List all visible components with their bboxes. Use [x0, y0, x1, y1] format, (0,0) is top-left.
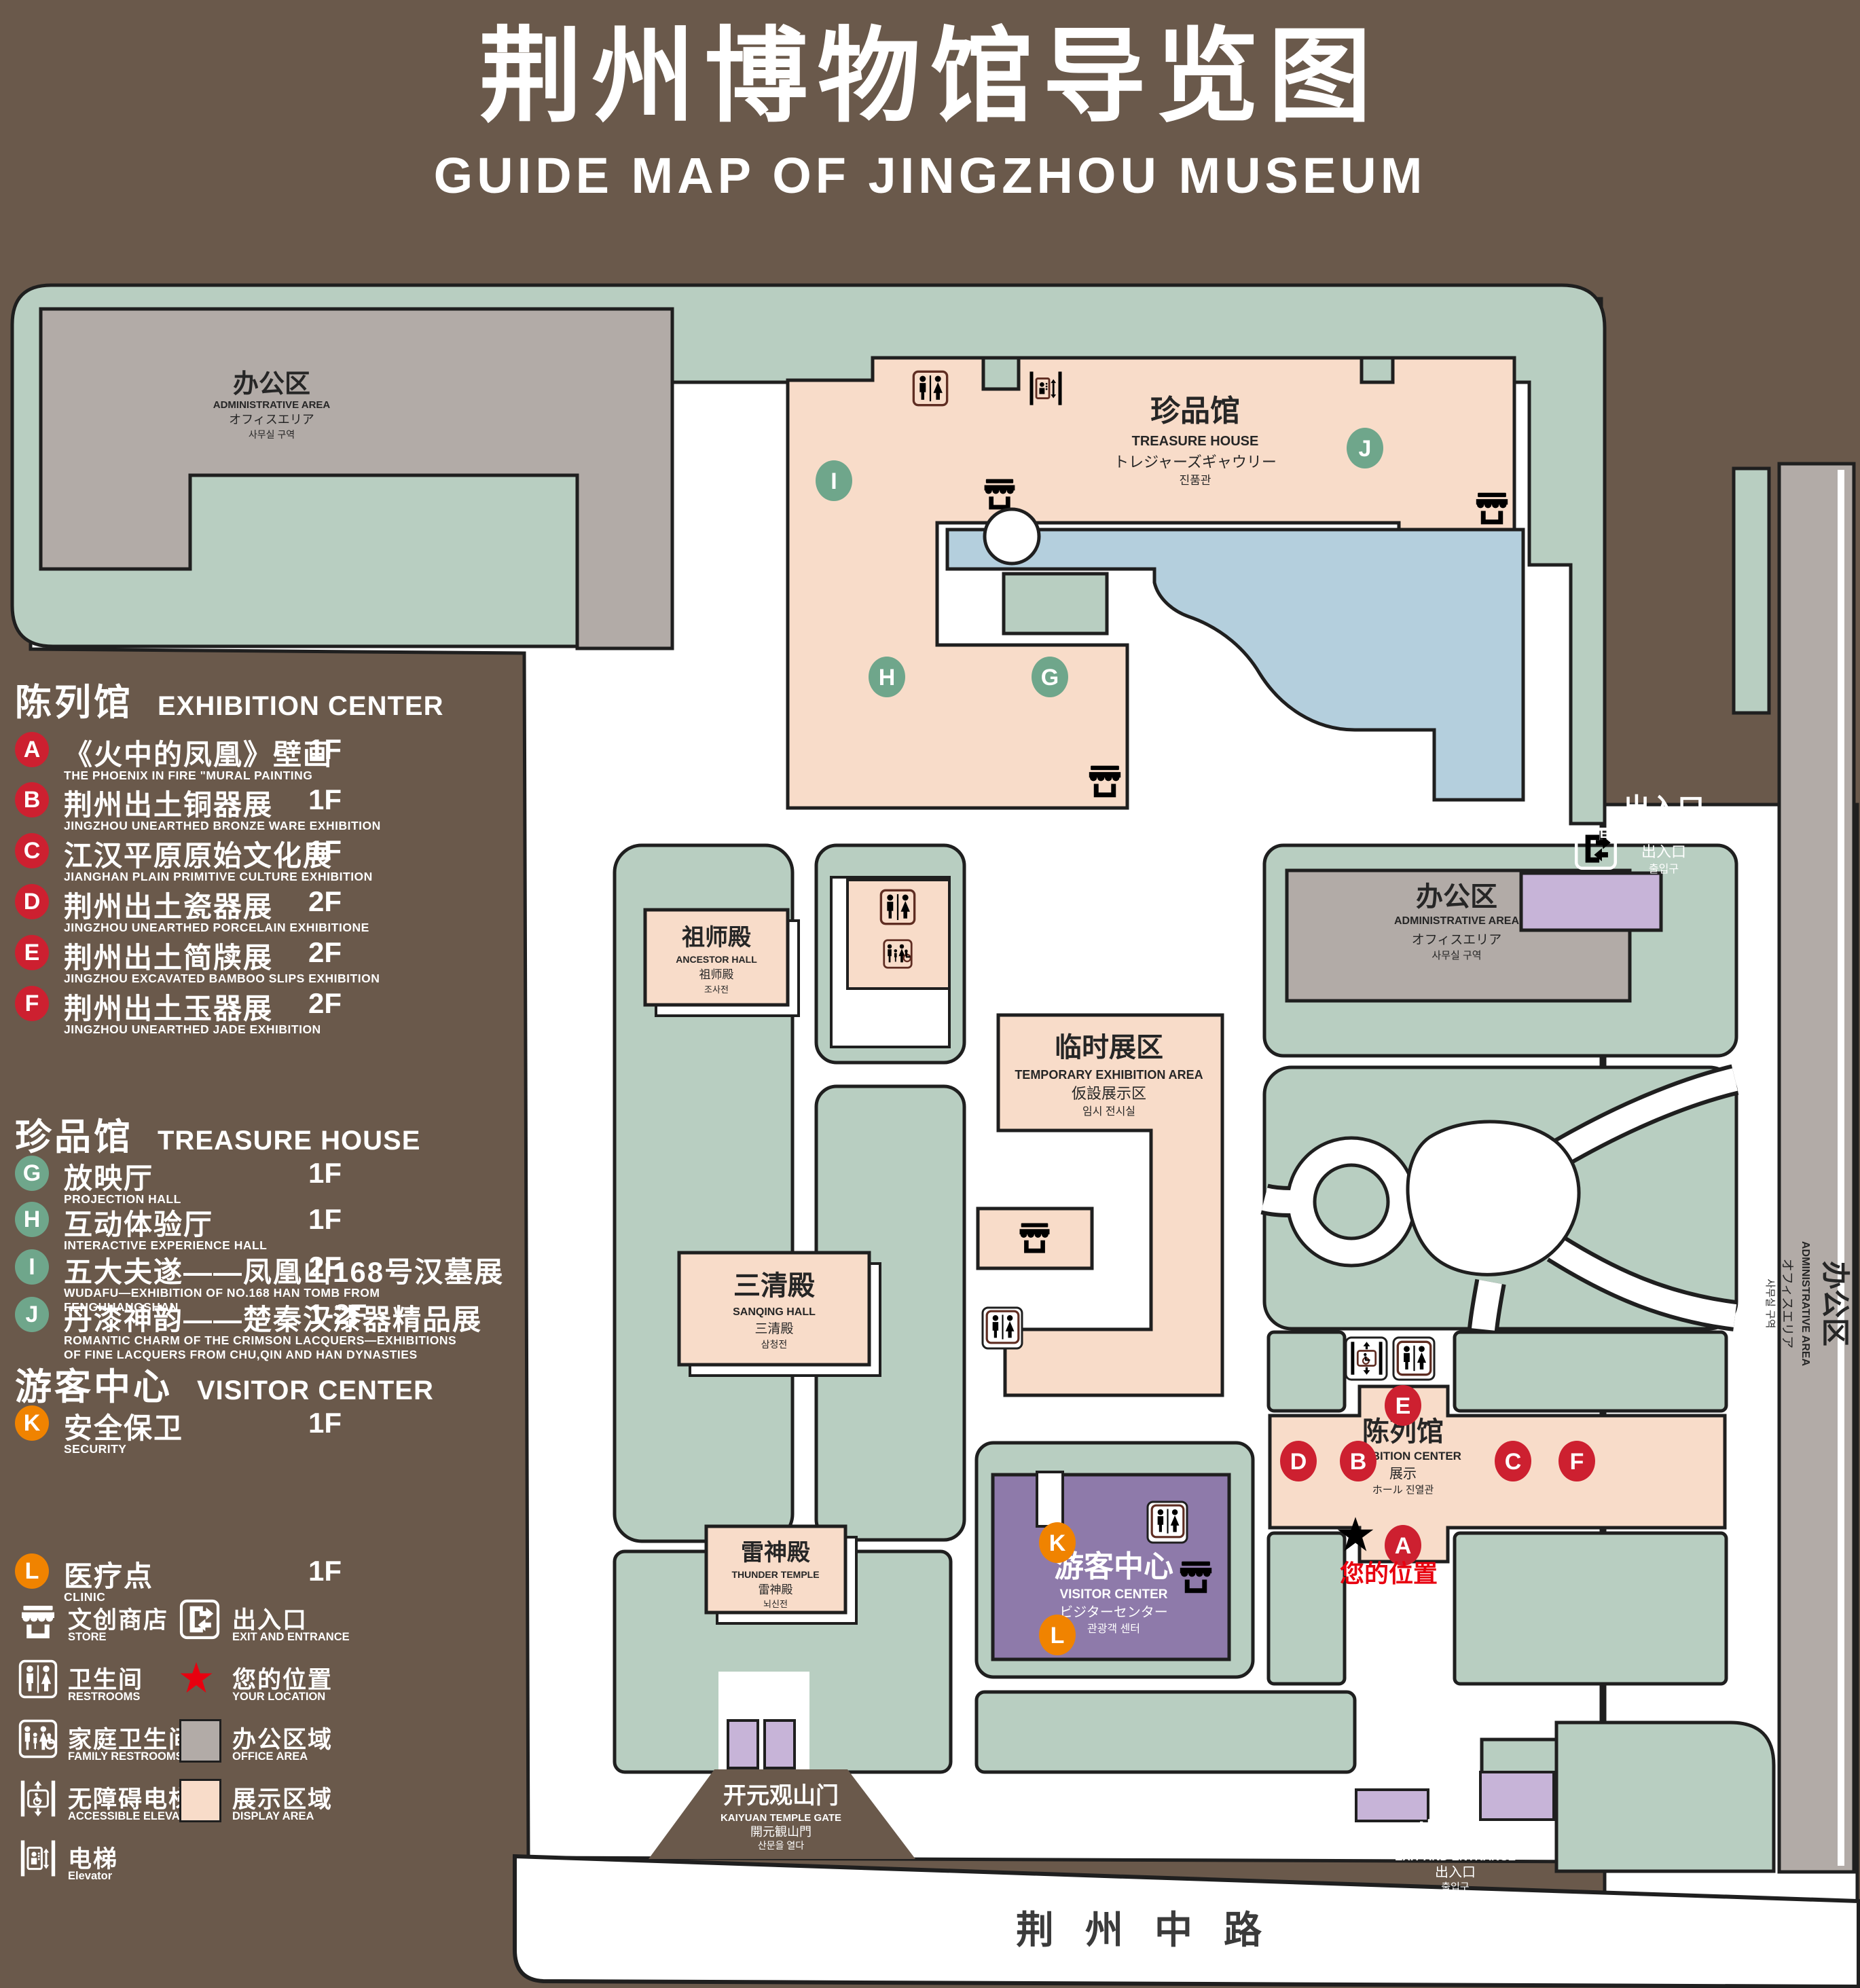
road-name: 荆州中路 [1016, 1909, 1293, 1951]
marker-F: F [1558, 1441, 1595, 1481]
marker-K: K [1039, 1522, 1076, 1563]
green-south-right [1556, 1723, 1774, 1871]
admin-fr-label-ja: オフィスエリア [1780, 1259, 1794, 1349]
exit-right-zh: 出入口 [1623, 794, 1704, 824]
green-exh-bottom-right [1455, 1533, 1726, 1684]
green-step-exit [1482, 1739, 1556, 1773]
green-strip-right-top [1734, 468, 1769, 713]
sanqing-label-ko: 삼청전 [761, 1339, 788, 1350]
visitor-label-ja: ビジターセンター [1059, 1604, 1168, 1620]
admin-tl-label-ko: 사무실 구역 [249, 429, 295, 440]
badge-C: C [15, 833, 49, 868]
building-admin-far-right: 办公区 ADMINISTRATIVE AREA オフィスエリア 사무실 구역 [1764, 464, 1854, 1872]
svg-text:K: K [1049, 1530, 1066, 1556]
marker-I: I [816, 460, 852, 501]
marker-J: J [1347, 428, 1383, 468]
exhibition-label-ko: ホール 진열관 [1372, 1484, 1434, 1496]
lavender-block-exit-right [1521, 873, 1661, 930]
exit-right-ko: 출입구 [1649, 863, 1679, 875]
sanqing-label-ja: 三清殿 [754, 1321, 793, 1336]
ancestor-label-ko: 조사전 [704, 984, 729, 995]
svg-text:E: E [1396, 1393, 1411, 1419]
badge-G: G [15, 1156, 49, 1191]
gate-pillar [765, 1720, 795, 1768]
sanqing-label-zh: 三清殿 [733, 1271, 815, 1301]
svg-text:I: I [831, 468, 837, 494]
exit-right-ja: 出入口 [1641, 843, 1686, 860]
thunder-label-ko: 뇌신전 [763, 1599, 788, 1609]
svg-text:C: C [1505, 1449, 1522, 1475]
svg-text:J: J [1359, 436, 1372, 462]
thunder-label-en: THUNDER TEMPLE [731, 1569, 819, 1580]
thunder-label-ja: 雷神殿 [759, 1583, 793, 1596]
hall-ancestor: 祖师殿 ANCESTOR HALL 祖师殿 조사전 [645, 910, 799, 1016]
pond-green-island [1004, 574, 1107, 633]
gate-label-ja: 開元観山門 [750, 1825, 812, 1839]
location-star-icon [179, 1661, 213, 1695]
thunder-label-zh: 雷神殿 [741, 1540, 810, 1566]
legend-panel: 陈列馆 EXHIBITION CENTER A 《火中的凤凰》壁画 THE PH… [8, 672, 531, 1983]
exhibition-label-ja: 展示 [1389, 1467, 1417, 1481]
section-title-en: TREASURE HOUSE [158, 1126, 420, 1156]
admin-fr-label-en: ADMINISTRATIVE AREA [1800, 1241, 1811, 1366]
temp-label-en: TEMPORARY EXHIBITION AREA [1015, 1068, 1203, 1082]
sanqing-label-en: SANQING HALL [733, 1306, 816, 1318]
admin-fr-label-zh: 办公区 [1819, 1261, 1851, 1346]
marker-C: C [1495, 1441, 1531, 1481]
badge-E: E [15, 935, 49, 970]
badge-A: A [15, 732, 49, 767]
legend-section-treasure: 珍品馆 TREASURE HOUSE [15, 1107, 420, 1160]
section-title-zh: 珍品馆 [15, 1107, 133, 1160]
temp-store-block [978, 1209, 1092, 1268]
admin-r-label-zh: 办公区 [1416, 882, 1497, 912]
admin-r-label-ko: 사무실 구역 [1432, 950, 1481, 961]
visitor-corridor-notch [1037, 1472, 1063, 1526]
your-location-label: 您的位置 [1340, 1560, 1438, 1587]
temp-label-ja: 仮設展示区 [1072, 1085, 1146, 1102]
svg-text:H: H [879, 665, 896, 691]
badge-K: K [15, 1405, 49, 1441]
gate-label-zh: 开元观山门 [723, 1783, 839, 1809]
admin-r-label-en: ADMINISTRATIVE AREA [1394, 915, 1519, 927]
admin-tl-label-zh: 办公区 [233, 370, 310, 399]
gate-post [1480, 1772, 1554, 1820]
ancestor-label-en: ANCESTOR HALL [676, 954, 757, 965]
store-icon [18, 1601, 58, 1643]
restroom-icon [18, 1658, 58, 1700]
courtyard-restroom-block [831, 877, 949, 1047]
admin-fr-label-ko: 사무실 구역 [1764, 1278, 1776, 1328]
marker-H: H [869, 657, 905, 697]
svg-text:A: A [1395, 1533, 1412, 1559]
exit-bottom-ko: 출입구 [1441, 1881, 1469, 1893]
treasure-label-ko: 진품관 [1180, 474, 1211, 487]
visitor-label-en: VISITOR CENTER [1059, 1587, 1167, 1602]
admin-r-label-ja: オフィスエリア [1412, 933, 1502, 947]
badge-H: H [15, 1202, 49, 1237]
exit-bottom-ja: 出入口 [1435, 1864, 1476, 1880]
treasure-label-ja: トレジャーズギャウリー [1114, 454, 1277, 471]
section-title-en: VISITOR CENTER [197, 1376, 434, 1406]
section-title-zh: 陈列馆 [15, 672, 133, 726]
marker-B: B [1340, 1441, 1376, 1481]
exit-bottom-en: EXIT AND ENTRANCE [1395, 1850, 1516, 1863]
green-exh-top-left [1269, 1332, 1345, 1411]
visitor-label-zh: 游客中心 [1054, 1550, 1173, 1583]
gate-label-ko: 산문을 열다 [758, 1840, 804, 1851]
badge-L: L [15, 1553, 49, 1589]
marker-E: E [1385, 1385, 1421, 1426]
admin-tl-label-ja: オフィスエリア [229, 413, 314, 426]
exit-bottom-zh: 出入口 [1417, 1819, 1494, 1847]
badge-D: D [15, 884, 49, 919]
treasure-label-en: TREASURE HOUSE [1132, 434, 1259, 449]
marker-L: L [1039, 1615, 1076, 1655]
ancestor-label-zh: 祖师殿 [682, 925, 751, 951]
treasure-label-zh: 珍品馆 [1150, 394, 1240, 428]
office-area-swatch [179, 1719, 221, 1763]
entrance-arc [985, 509, 1039, 564]
green-south-mid [977, 1692, 1355, 1772]
badge-B: B [15, 782, 49, 817]
gate-pillar [728, 1720, 758, 1768]
badge-F: F [15, 986, 49, 1021]
badge-I: I [15, 1249, 49, 1285]
badge-J: J [15, 1297, 49, 1332]
temp-label-ko: 임시 전시실 [1082, 1105, 1135, 1118]
svg-text:F: F [1570, 1449, 1584, 1475]
marker-G: G [1032, 657, 1068, 697]
svg-text:G: G [1041, 665, 1059, 691]
gate-post [1356, 1790, 1428, 1821]
family-restroom-icon [18, 1718, 58, 1760]
temp-label-zh: 临时展区 [1055, 1033, 1163, 1063]
treasure-notch-2 [1362, 358, 1393, 382]
elevator-icon [18, 1837, 58, 1879]
admin-tl-label-en: ADMINISTRATIVE AREA [213, 399, 331, 411]
building-visitor-center: 游客中心 VISITOR CENTER ビジターセンター 관광객 센터 K L [993, 1472, 1229, 1659]
green-exh-top-right [1455, 1332, 1726, 1411]
section-title-zh: 游客中心 [15, 1357, 172, 1410]
hall-sanqing: 三清殿 SANQING HALL 三清殿 삼청전 [679, 1253, 880, 1376]
display-area-swatch [179, 1779, 221, 1822]
legend-section-visitor: 游客中心 VISITOR CENTER [15, 1357, 434, 1410]
svg-text:L: L [1051, 1623, 1065, 1649]
guide-map-poster: 荆州博物馆导览图 GUIDE MAP OF JINGZHOU MUSEUM [0, 0, 1860, 1988]
legend-section-exhibition: 陈列馆 EXHIBITION CENTER [15, 672, 443, 726]
section-title-en: EXHIBITION CENTER [158, 691, 443, 722]
exit-icon [179, 1598, 220, 1640]
exit-right-en: EXIT AND ENTRANCE [1600, 827, 1728, 841]
visitor-label-ko: 관광객 센터 [1087, 1623, 1140, 1635]
svg-text:D: D [1290, 1449, 1307, 1475]
green-exh-bottom-left [1269, 1533, 1345, 1684]
gate-label-en: KAIYUAN TEMPLE GATE [721, 1812, 841, 1824]
hall-thunder: 雷神殿 THUNDER TEMPLE 雷神殿 뇌신전 [706, 1526, 856, 1623]
marker-D: D [1280, 1441, 1317, 1481]
ancestor-label-ja: 祖师殿 [699, 968, 734, 981]
treasure-notch-1 [983, 358, 1019, 389]
accessible-elevator-icon [18, 1778, 58, 1820]
svg-text:B: B [1350, 1449, 1367, 1475]
